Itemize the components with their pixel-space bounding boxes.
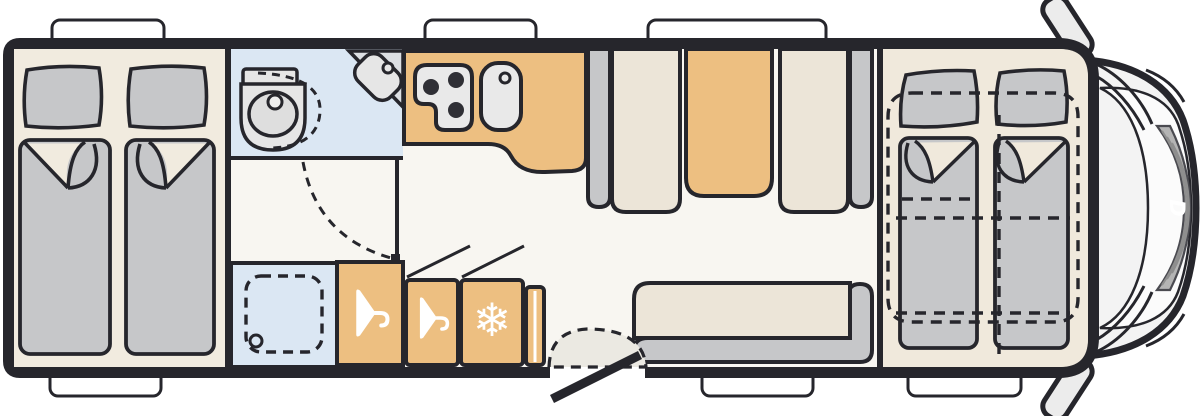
dinette-backrest-right — [850, 49, 872, 207]
pillow — [901, 71, 978, 127]
burner-icon — [448, 102, 464, 118]
burner-icon — [423, 79, 439, 95]
burner-icon — [448, 72, 464, 88]
dinette — [588, 49, 872, 212]
side-sofa — [634, 283, 872, 362]
faucet-icon — [500, 73, 510, 83]
kitchen-sink — [481, 63, 521, 130]
dinette-table — [686, 49, 772, 196]
pillow — [24, 66, 101, 127]
brand-logo: D — [1165, 199, 1189, 216]
pillow — [996, 70, 1067, 126]
pillow — [128, 66, 206, 128]
dinette-seat-right — [780, 49, 848, 212]
floor-plan-canvas: D — [0, 0, 1200, 416]
floor-plan: D — [0, 0, 1200, 416]
dinette-seat-left — [612, 49, 680, 212]
sofa-seat — [634, 283, 850, 338]
bed-front-right — [995, 138, 1068, 348]
bed-front-left — [900, 138, 977, 348]
partition-wall-front — [877, 49, 883, 367]
drain-icon — [250, 335, 262, 347]
snowflake-icon: ❄ — [473, 293, 512, 347]
shower — [231, 263, 337, 367]
bed-right — [126, 140, 214, 354]
bed-left — [20, 140, 110, 354]
entry-door — [549, 329, 646, 399]
dinette-backrest-left — [588, 49, 610, 207]
